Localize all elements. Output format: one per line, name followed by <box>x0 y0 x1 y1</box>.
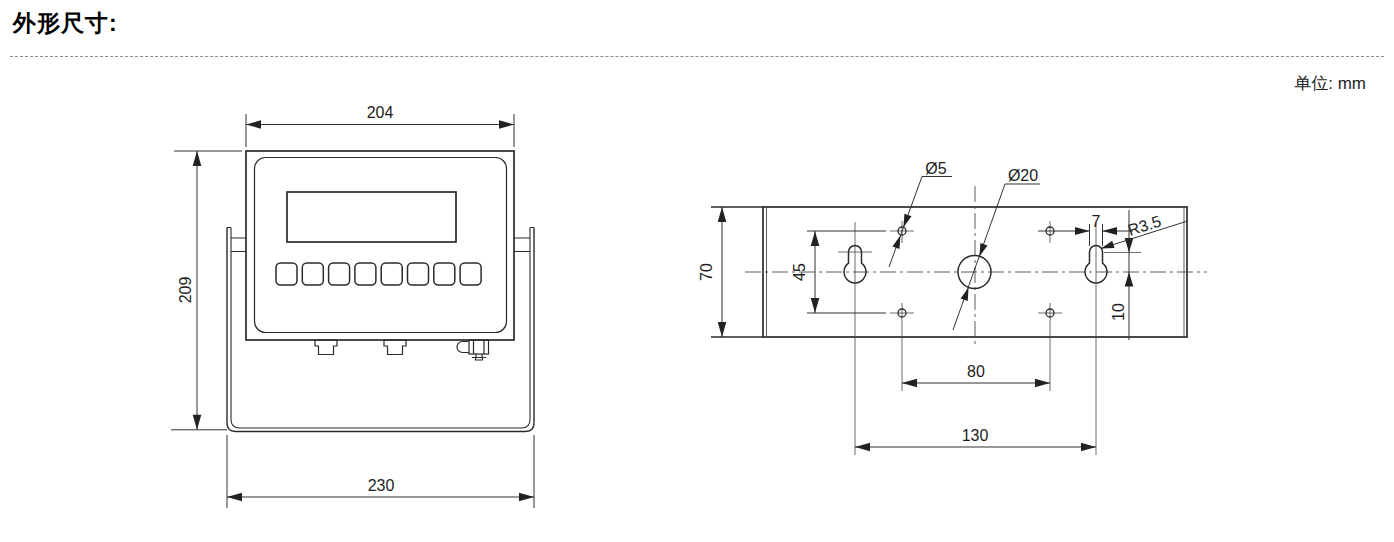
dim-label-204: 204 <box>367 104 394 121</box>
rear-plate-drawing: 70 45 80 130 <box>698 160 1207 455</box>
dim-label-209: 209 <box>177 277 194 304</box>
dim-front-top-width: 204 <box>246 104 514 147</box>
callout-small-hole-diameter: Ø5 <box>889 160 952 267</box>
dimension-drawing-canvas: 204 209 230 <box>0 0 1394 542</box>
front-view-drawing: 204 209 230 <box>171 104 534 508</box>
dim-label-7: 7 <box>1092 213 1101 230</box>
dim-label-130: 130 <box>962 427 989 444</box>
dim-label-80: 80 <box>967 363 985 380</box>
dim-front-bottom-width: 230 <box>227 435 534 508</box>
keypad-buttons <box>276 263 481 285</box>
dim-slot-width: 7 <box>1038 213 1133 246</box>
outline-dimensions-page: 外形尺寸: 单位: mm <box>0 0 1394 542</box>
display-window <box>287 192 456 242</box>
label-hole-dia-small: Ø5 <box>925 160 946 177</box>
dim-label-230: 230 <box>368 477 395 494</box>
dim-label-70: 70 <box>698 263 715 281</box>
mounting-bracket <box>227 228 534 432</box>
dim-keyhole-spacing: 130 <box>855 427 1096 451</box>
dim-plate-height: 70 <box>698 207 726 337</box>
cable-connectors <box>315 340 489 360</box>
label-hole-dia-center: Ø20 <box>1008 167 1038 184</box>
dim-label-45: 45 <box>791 263 808 281</box>
indicator-body <box>246 151 514 340</box>
front-panel <box>255 158 507 333</box>
callout-center-hole-diameter: Ø20 <box>953 167 1040 330</box>
dim-hole-horizontal-spacing: 80 <box>902 363 1050 387</box>
dim-label-10: 10 <box>1110 303 1127 321</box>
